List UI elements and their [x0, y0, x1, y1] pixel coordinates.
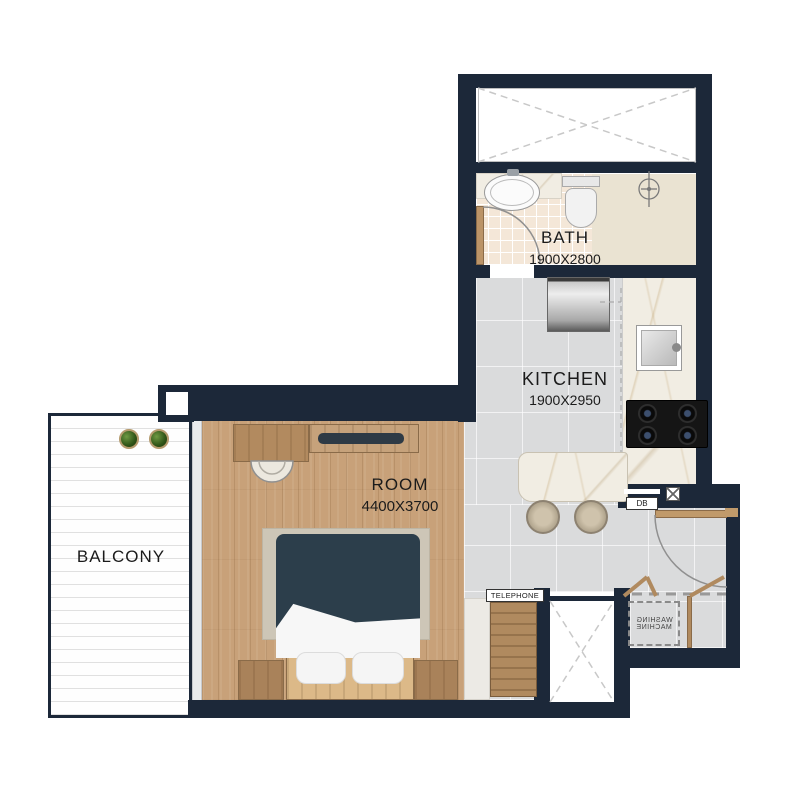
bath-dimensions: 1900X2800 — [500, 250, 630, 269]
shaft-cross-bottom — [550, 601, 614, 702]
floor-plan: DB WASHING MACHINE TELEPHONE — [0, 0, 800, 800]
entrance-door-arc — [655, 515, 727, 587]
room-label-group: ROOM 4400X3700 — [330, 474, 470, 517]
chair — [251, 461, 293, 482]
plan-linework — [0, 0, 800, 800]
balcony-label-group: BALCONY — [50, 546, 192, 569]
bath-label: BATH — [500, 227, 630, 250]
shaft-cross-top — [478, 88, 696, 162]
room-label: ROOM — [330, 474, 470, 497]
room-dimensions: 4400X3700 — [330, 497, 470, 517]
shower-head-icon — [639, 171, 659, 207]
kitchen-label-group: KITCHEN 1900X2950 — [495, 367, 635, 410]
db-label: DB — [636, 499, 647, 508]
kitchen-dimensions: 1900X2950 — [495, 391, 635, 410]
telephone-label-box: TELEPHONE — [486, 589, 544, 602]
balcony-label: BALCONY — [50, 546, 192, 569]
db-box: DB — [626, 497, 658, 510]
kitchen-label: KITCHEN — [495, 367, 635, 391]
telephone-label: TELEPHONE — [491, 591, 539, 600]
bath-label-group: BATH 1900X2800 — [500, 227, 630, 269]
